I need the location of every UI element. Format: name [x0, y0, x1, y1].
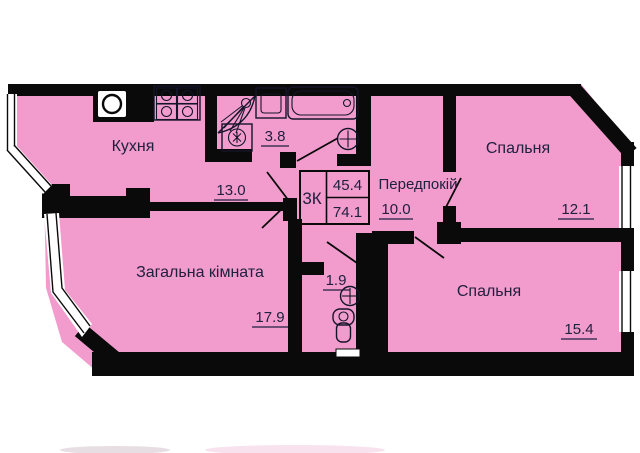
window-bedroom1-right [619, 166, 635, 228]
floor-plan: 3К 45.4 74.1 Кухня 13.0 Загальна кімната… [0, 0, 640, 453]
wall-kitchen-living-step [126, 188, 150, 198]
wall-kitchen-pier [128, 84, 154, 122]
wall-hall-bedroom1-upper [443, 96, 456, 172]
wall-bedroom1-bottom [443, 228, 634, 242]
hallway-area: 10.0 [381, 201, 410, 218]
wall-bottom [92, 352, 634, 376]
wall-bedroom2-left [372, 241, 388, 352]
unit-total-area: 74.1 [333, 204, 362, 221]
window-bedroom2-right [619, 271, 635, 332]
living-room-label: Загальна кімната [136, 264, 264, 281]
bedroom2-label: Спальня [457, 283, 521, 300]
floor-plan-drawing: 3К 45.4 74.1 Кухня 13.0 Загальна кімната… [0, 0, 640, 453]
wall-bath-bottom-block [280, 152, 296, 168]
kitchen-sink-icon [93, 86, 131, 122]
watermark-logo-cropped [60, 445, 385, 453]
hallway-label: Передпокій [379, 176, 458, 193]
wall-kitchen-living-thin [150, 202, 286, 211]
living-room-area: 17.9 [255, 309, 284, 326]
wall-living-wc [288, 219, 302, 352]
bedroom1-label: Спальня [486, 140, 550, 157]
wall-divider-cap [283, 198, 297, 221]
window-kitchen-left [5, 94, 17, 152]
unit-living-area: 45.4 [333, 177, 362, 194]
bathroom-sink-icon [338, 129, 359, 150]
wall-bath-left [205, 96, 217, 156]
duct-notch [336, 349, 360, 357]
bedroom1-area: 12.1 [561, 201, 590, 218]
kitchen-area: 13.0 [216, 182, 245, 199]
kitchen-label: Кухня [112, 138, 155, 155]
wc-area: 1.9 [326, 272, 347, 289]
bathroom-area: 3.8 [265, 128, 286, 145]
unit-type-label: 3К [302, 189, 321, 208]
wall-wc-stub [302, 262, 324, 275]
bedroom2-area: 15.4 [564, 321, 593, 338]
wall-kitchen-living-thick [64, 196, 150, 218]
